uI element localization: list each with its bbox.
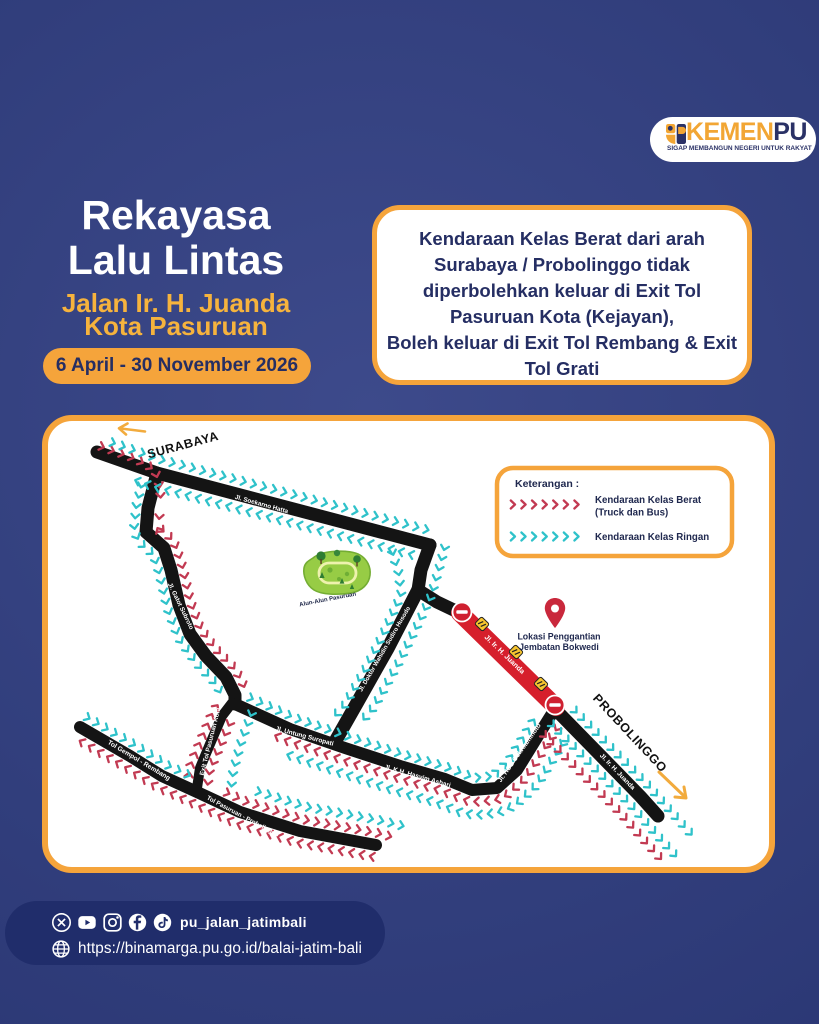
svg-text:Jembatan Bokwedi: Jembatan Bokwedi — [519, 642, 599, 652]
svg-text:(Truck dan Bus): (Truck dan Bus) — [595, 508, 668, 519]
svg-text:SURABAYA: SURABAYA — [146, 429, 220, 462]
svg-text:Lokasi Penggantian: Lokasi Penggantian — [517, 632, 600, 642]
svg-text:Kendaraan Kelas Berat: Kendaraan Kelas Berat — [595, 495, 702, 506]
svg-text:Kendaraan Kelas Ringan: Kendaraan Kelas Ringan — [595, 532, 709, 543]
svg-text:Keterangan :: Keterangan : — [515, 478, 579, 490]
